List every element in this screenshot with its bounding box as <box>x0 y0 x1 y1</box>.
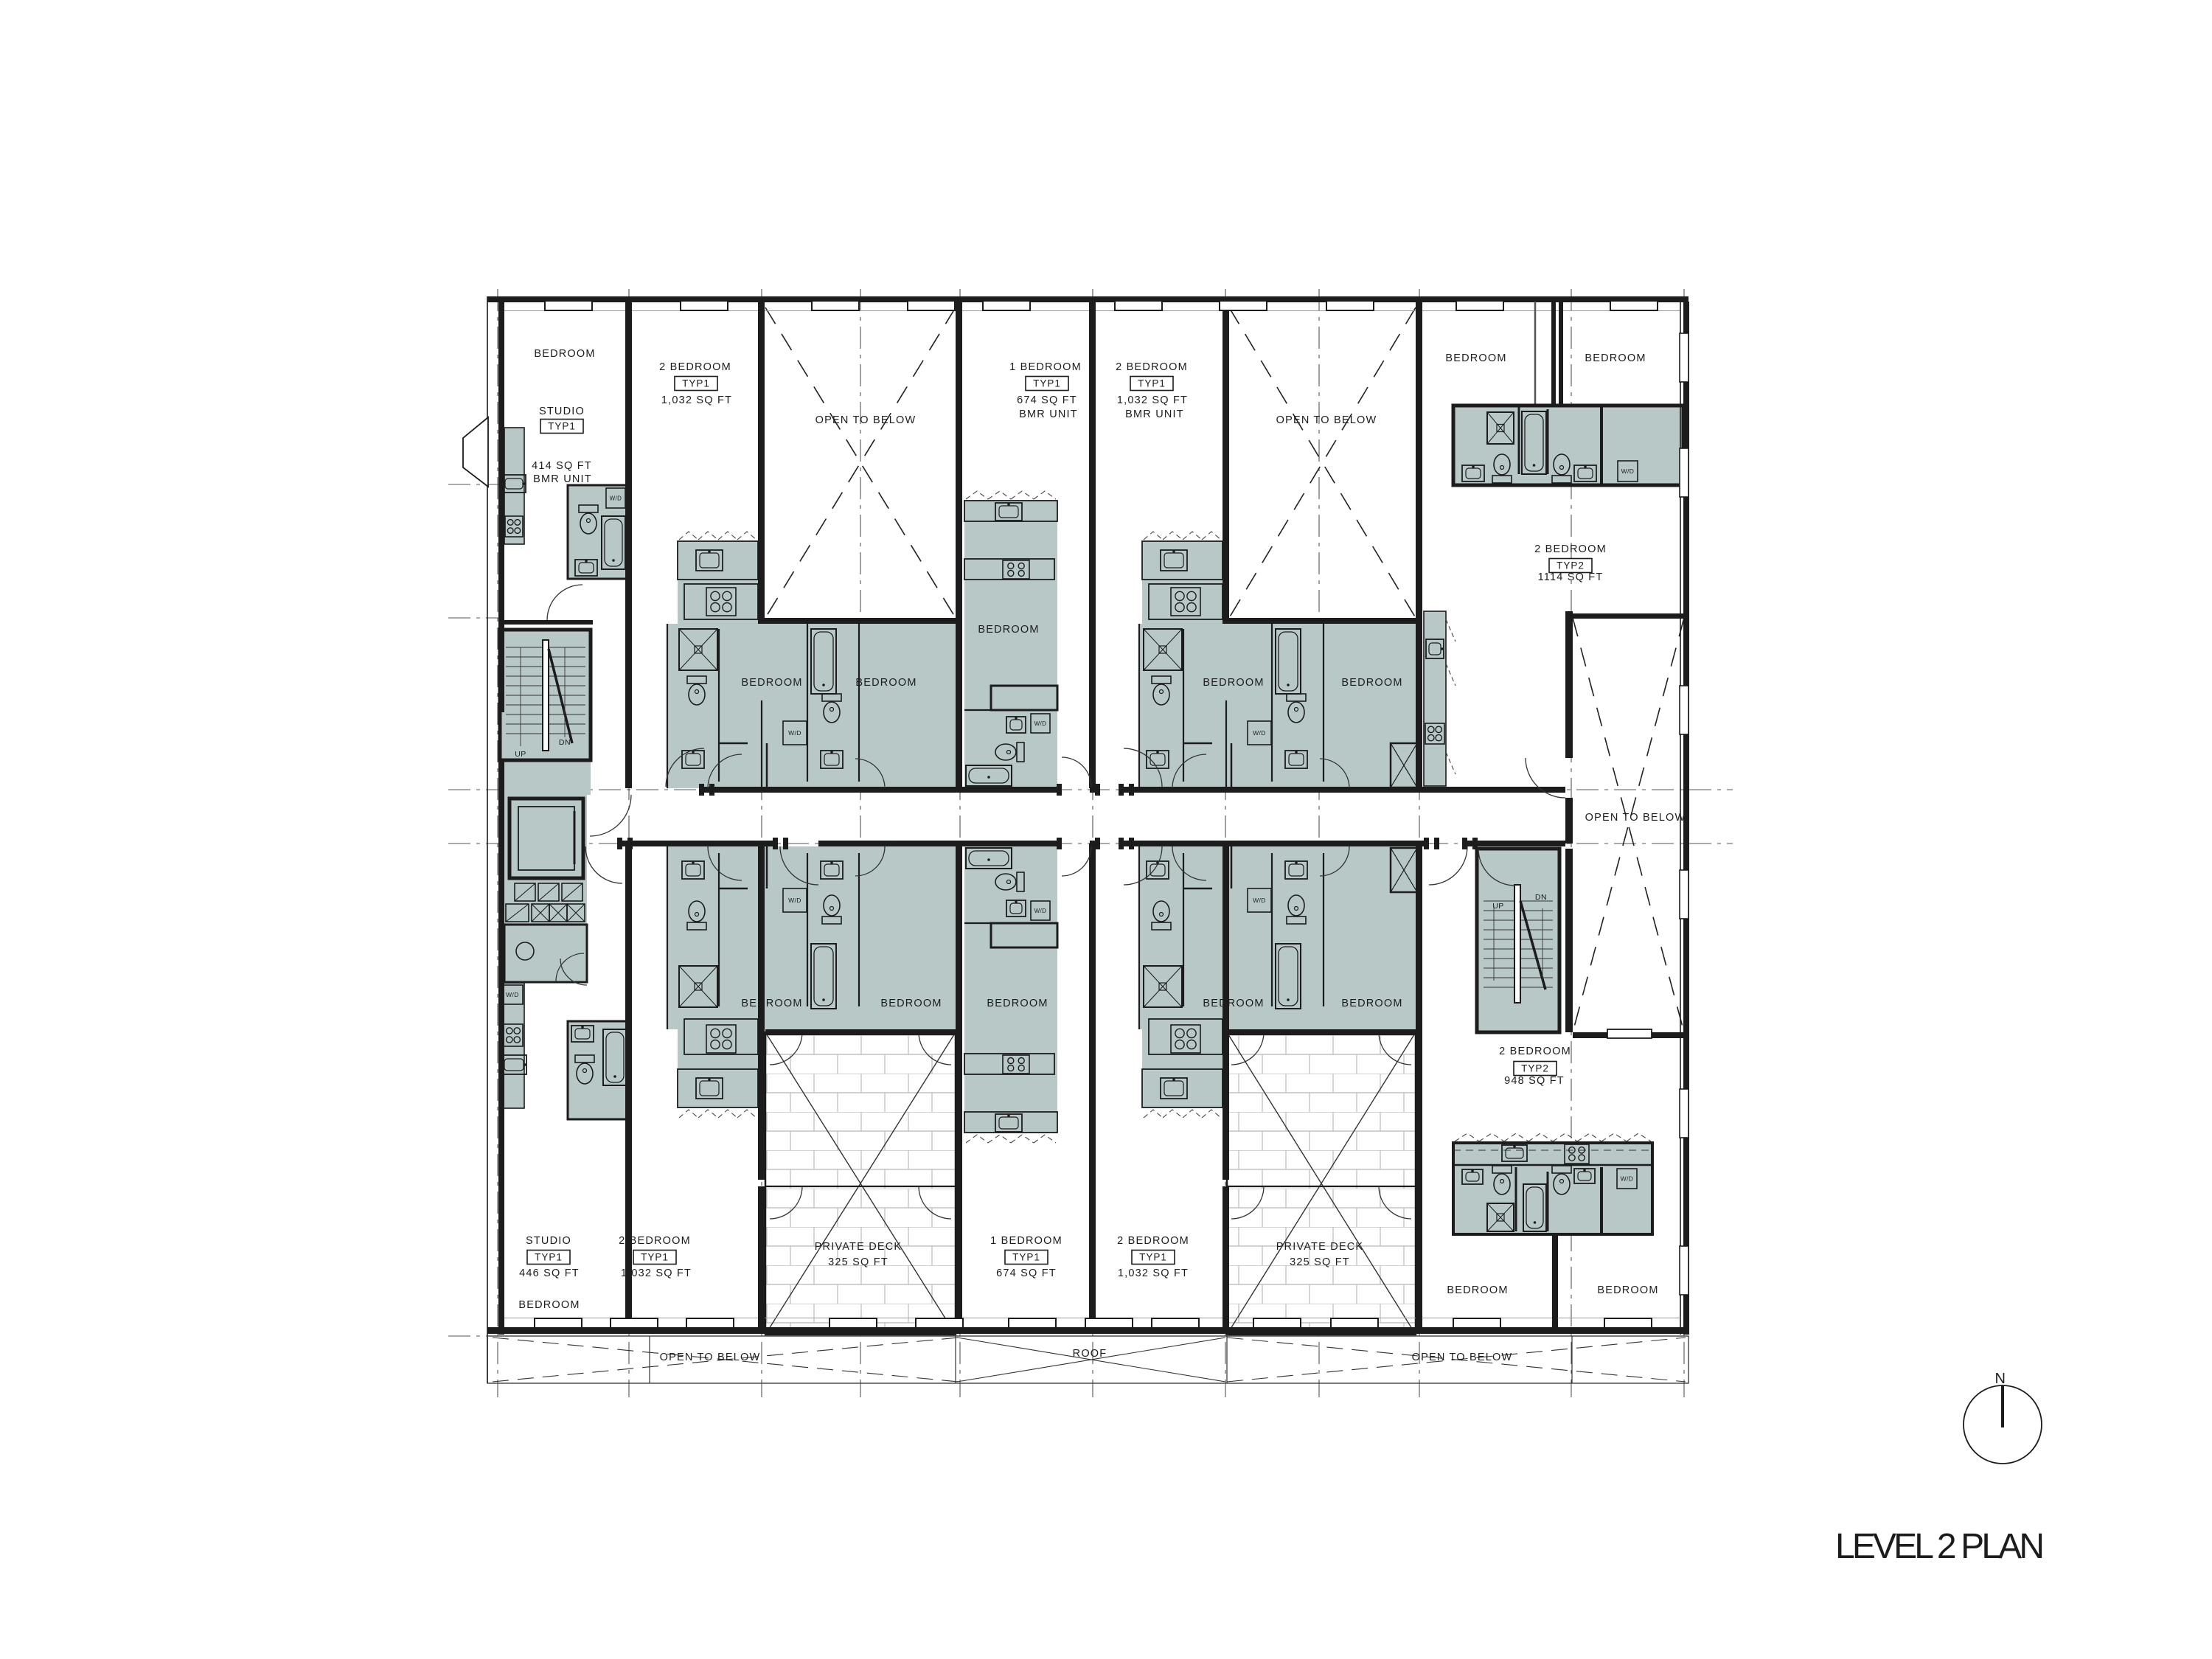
svg-text:STUDIO: STUDIO <box>539 406 585 417</box>
svg-text:BEDROOM: BEDROOM <box>1341 677 1402 689</box>
svg-text:W/D: W/D <box>1253 897 1266 904</box>
svg-text:948 SQ FT: 948 SQ FT <box>1504 1075 1565 1087</box>
svg-text:W/D: W/D <box>788 897 801 904</box>
svg-text:BEDROOM: BEDROOM <box>1585 352 1646 364</box>
svg-text:BEDROOM: BEDROOM <box>1341 998 1402 1009</box>
svg-text:OPEN TO BELOW: OPEN TO BELOW <box>1412 1352 1513 1363</box>
svg-text:OPEN TO BELOW: OPEN TO BELOW <box>1276 414 1377 426</box>
svg-text:PRIVATE DECK: PRIVATE DECK <box>1276 1241 1364 1253</box>
svg-text:TYP2: TYP2 <box>1521 1063 1549 1074</box>
svg-text:OPEN TO BELOW: OPEN TO BELOW <box>815 414 917 426</box>
svg-text:W/D: W/D <box>610 495 622 501</box>
svg-text:1114 SQ FT: 1114 SQ FT <box>1538 571 1604 583</box>
svg-text:BEDROOM: BEDROOM <box>855 677 917 689</box>
svg-text:UP: UP <box>1492 902 1504 911</box>
svg-text:OPEN TO BELOW: OPEN TO BELOW <box>1585 812 1686 824</box>
svg-text:W/D: W/D <box>1621 1175 1634 1182</box>
svg-text:W/D: W/D <box>1034 908 1047 914</box>
svg-text:TYP1: TYP1 <box>641 1252 669 1263</box>
svg-text:W/D: W/D <box>1253 729 1266 737</box>
svg-text:TYP1: TYP1 <box>1033 378 1061 389</box>
svg-text:DN: DN <box>559 738 571 747</box>
svg-text:LEVEL 2 PLAN: LEVEL 2 PLAN <box>1835 1527 2045 1566</box>
svg-text:BMR UNIT: BMR UNIT <box>533 473 592 485</box>
svg-text:OPEN TO BELOW: OPEN TO BELOW <box>660 1352 761 1363</box>
svg-text:BEDROOM: BEDROOM <box>741 677 802 689</box>
svg-text:BMR UNIT: BMR UNIT <box>1019 408 1078 420</box>
svg-text:TYP1: TYP1 <box>1139 1252 1167 1263</box>
svg-text:414 SQ FT: 414 SQ FT <box>532 460 592 472</box>
svg-text:325 SQ FT: 325 SQ FT <box>828 1256 888 1268</box>
svg-text:PRIVATE DECK: PRIVATE DECK <box>815 1241 902 1253</box>
svg-text:2 BEDROOM: 2 BEDROOM <box>1117 1235 1189 1247</box>
svg-text:1 BEDROOM: 1 BEDROOM <box>990 1235 1062 1247</box>
svg-text:STUDIO: STUDIO <box>526 1235 571 1247</box>
svg-text:N: N <box>1995 1371 2006 1387</box>
svg-text:BEDROOM: BEDROOM <box>1203 677 1264 689</box>
svg-text:2 BEDROOM: 2 BEDROOM <box>659 361 731 373</box>
svg-text:W/D: W/D <box>1034 720 1047 727</box>
svg-text:TYP1: TYP1 <box>1138 378 1166 389</box>
svg-text:BEDROOM: BEDROOM <box>1597 1284 1658 1296</box>
svg-text:674 SQ FT: 674 SQ FT <box>996 1267 1057 1279</box>
svg-text:BEDROOM: BEDROOM <box>518 1299 580 1311</box>
svg-text:BEDROOM: BEDROOM <box>987 998 1048 1009</box>
svg-text:UP: UP <box>515 750 526 759</box>
svg-text:BMR UNIT: BMR UNIT <box>1125 408 1184 420</box>
svg-text:BEDROOM: BEDROOM <box>880 998 942 1009</box>
svg-text:BEDROOM: BEDROOM <box>1447 1284 1508 1296</box>
svg-text:2 BEDROOM: 2 BEDROOM <box>619 1235 691 1247</box>
svg-text:BEDROOM: BEDROOM <box>978 624 1039 636</box>
svg-text:2 BEDROOM: 2 BEDROOM <box>1534 543 1607 555</box>
svg-text:BEDROOM: BEDROOM <box>1445 352 1506 364</box>
svg-text:TYP1: TYP1 <box>1012 1252 1040 1263</box>
svg-text:ROOF: ROOF <box>1073 1348 1107 1360</box>
svg-text:W/D: W/D <box>1621 467 1635 475</box>
svg-text:1,032 SQ FT: 1,032 SQ FT <box>621 1267 692 1279</box>
svg-text:1 BEDROOM: 1 BEDROOM <box>1009 361 1082 373</box>
svg-text:W/D: W/D <box>506 991 519 998</box>
svg-text:TYP2: TYP2 <box>1557 560 1585 571</box>
svg-text:1,032 SQ FT: 1,032 SQ FT <box>661 394 732 406</box>
svg-text:W/D: W/D <box>788 729 801 737</box>
svg-text:2 BEDROOM: 2 BEDROOM <box>1116 361 1188 373</box>
svg-text:1,032 SQ FT: 1,032 SQ FT <box>1117 394 1188 406</box>
svg-text:BEDROOM: BEDROOM <box>1203 998 1264 1009</box>
svg-text:446 SQ FT: 446 SQ FT <box>519 1267 580 1279</box>
svg-text:TYP1: TYP1 <box>548 421 576 432</box>
svg-text:TYP1: TYP1 <box>535 1252 563 1263</box>
svg-text:TYP1: TYP1 <box>682 378 710 389</box>
svg-text:2 BEDROOM: 2 BEDROOM <box>1499 1046 1571 1057</box>
svg-text:BEDROOM: BEDROOM <box>534 348 595 360</box>
svg-text:BEDROOM: BEDROOM <box>741 998 802 1009</box>
svg-text:674 SQ FT: 674 SQ FT <box>1017 394 1077 406</box>
svg-text:1,032 SQ FT: 1,032 SQ FT <box>1118 1267 1189 1279</box>
svg-text:DN: DN <box>1535 893 1547 902</box>
svg-text:325 SQ FT: 325 SQ FT <box>1290 1256 1350 1268</box>
